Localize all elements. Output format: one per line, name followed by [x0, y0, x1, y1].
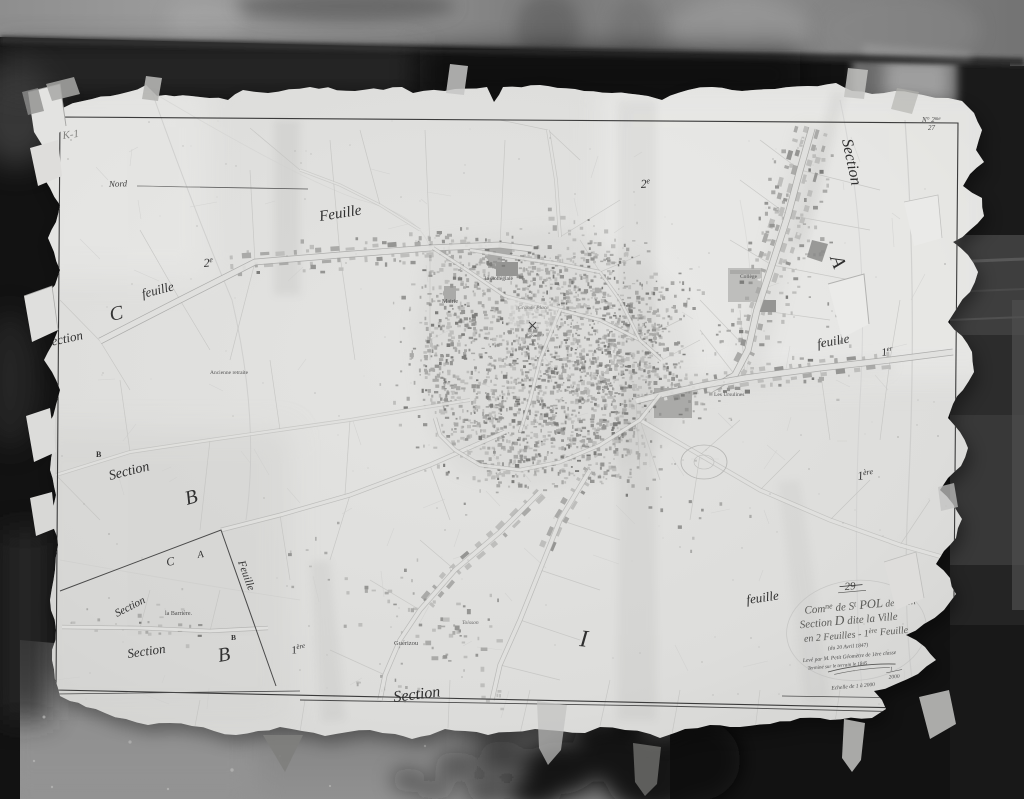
svg-text:Ancienne retraite: Ancienne retraite	[210, 370, 249, 376]
svg-text:la Barrière.: la Barrière.	[165, 611, 192, 617]
svg-text:B: B	[96, 450, 102, 459]
svg-text:Toisson: Toisson	[462, 620, 479, 626]
svg-text:Nord: Nord	[108, 178, 128, 189]
svg-text:Guérizou: Guérizou	[394, 640, 419, 647]
svg-text:la Collégiale: la Collégiale	[485, 276, 514, 282]
svg-text:27: 27	[928, 124, 936, 132]
svg-text:2000: 2000	[888, 674, 900, 681]
svg-text:Collège: Collège	[740, 274, 758, 280]
svg-text:Mairie: Mairie	[442, 299, 458, 305]
svg-text:Les Ursulines: Les Ursulines	[714, 392, 744, 398]
svg-text:Calvaire: Calvaire	[526, 333, 541, 338]
svg-text:B: B	[231, 633, 236, 642]
svg-text:K-1: K-1	[61, 128, 80, 142]
svg-text:Grande Place: Grande Place	[518, 305, 549, 311]
